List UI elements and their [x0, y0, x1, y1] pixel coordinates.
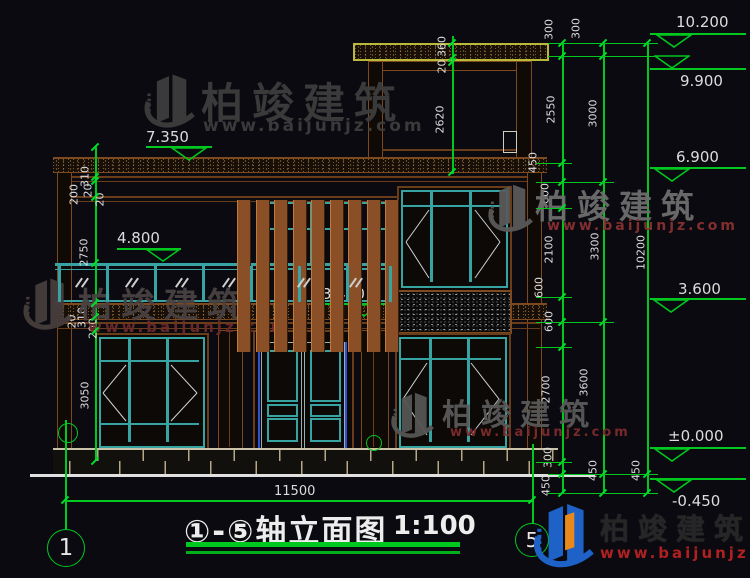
brand-logo-icon: [532, 502, 594, 574]
dim-extension-line: [548, 43, 658, 44]
elevation-label: 9.900: [680, 72, 723, 90]
door-panel: [310, 404, 341, 417]
watermark-site: www.baijunjz.com: [547, 218, 738, 234]
dim-label: 20: [94, 177, 107, 223]
roof-fascia-line: [57, 181, 540, 182]
brand-logo-icon: [487, 182, 533, 238]
dim-extension-line: [536, 297, 572, 298]
wood-slat: [348, 200, 362, 352]
dim-label: 20: [436, 44, 449, 90]
elevation-triangle: [654, 448, 690, 462]
drain-circle: [58, 423, 78, 443]
dim-label: 300: [543, 7, 556, 53]
door-edge-line: [345, 342, 347, 456]
overall-dim-line: [65, 500, 532, 502]
penthouse-sill-line: [382, 149, 516, 151]
dim-label: 2620: [434, 97, 447, 143]
elevation-triangle: [654, 55, 690, 69]
drain-circle: [366, 435, 382, 451]
axis-number: 1: [59, 535, 74, 561]
dim-label: 2550: [545, 87, 558, 133]
scale-label: 1:100: [393, 511, 476, 541]
dim-extension-line: [548, 474, 658, 475]
dim-extension-line: [548, 493, 658, 494]
railing-post: [154, 266, 157, 302]
door-panel: [267, 418, 298, 442]
dim-label: 3050: [79, 373, 92, 419]
dim-extension-line: [536, 208, 572, 209]
dim-label: 300: [570, 6, 583, 52]
railing-post: [58, 266, 61, 302]
elevation-label: ±0.000: [668, 427, 724, 445]
dim-label: 10200: [635, 230, 648, 276]
door-panel: [267, 350, 298, 402]
brand-logo-icon: [22, 276, 72, 336]
wood-slat: [311, 200, 325, 352]
dim-label: 11500: [274, 484, 315, 499]
brand-logo-icon: [390, 390, 434, 444]
dim-extension-line: [548, 56, 658, 57]
wood-slat: [367, 200, 381, 352]
spandrel-panel: [397, 290, 512, 334]
title-underline: [186, 551, 460, 554]
railing-post: [202, 266, 205, 302]
elevation-triangle: [656, 34, 692, 48]
dim-extension-line: [536, 347, 572, 348]
wood-slat: [256, 200, 270, 352]
elevation-label: 6.900: [676, 148, 719, 166]
pilaster-line: [229, 331, 230, 447]
axis-bubble-1: 1: [47, 529, 85, 567]
dim-label: 450: [587, 448, 600, 494]
title-underline: [186, 542, 460, 547]
elevation-label: 4.800: [117, 229, 160, 247]
watermark-site: www.baijunjz.com: [450, 425, 631, 440]
logo-site-text: www.baijunjz.com: [600, 544, 750, 562]
dim-label: 2750: [78, 230, 91, 276]
elevation-label: 3.600: [678, 280, 721, 298]
penthouse-ledge: [503, 131, 517, 153]
roof-fascia-line: [57, 176, 540, 178]
watermark-site: www.baijunjz.com: [203, 116, 425, 136]
elevation-triangle: [653, 299, 689, 313]
casement-open-symbols: [99, 337, 201, 444]
door-panel: [310, 418, 341, 442]
ground-line: [30, 474, 595, 477]
dim-label: 3000: [587, 91, 600, 137]
elevation-triangle: [146, 249, 180, 262]
door-panel: [310, 350, 341, 402]
elevation-triangle: [171, 147, 207, 161]
logo-brand-text: 柏竣建筑: [600, 506, 750, 548]
dim-extension-line: [536, 182, 614, 183]
wood-slat: [385, 200, 399, 352]
dim-extension-line: [536, 163, 572, 164]
dim-extension-line: [536, 462, 572, 463]
railing-post: [346, 266, 349, 302]
elevation-line: [650, 68, 746, 70]
elevation-drawing: 300 2550 450 600 2100 600 600 2700 300 4…: [0, 0, 750, 578]
railing-post: [250, 266, 253, 302]
wood-slat: [237, 200, 251, 352]
axis-line: [65, 420, 67, 530]
brand-logo-icon: [143, 72, 195, 134]
railing-post: [106, 266, 109, 302]
wood-slat: [274, 200, 288, 352]
railing-post: [389, 266, 392, 302]
band-line: [57, 196, 397, 198]
main-roof-slab: [53, 157, 547, 173]
door-panel: [267, 404, 298, 417]
dim-extension-line: [536, 322, 614, 323]
elevation-label: 10.200: [676, 13, 729, 31]
dim-label: 200: [68, 172, 81, 218]
wood-slat: [330, 200, 344, 352]
door-edge-line: [258, 342, 260, 456]
dim-label: 450: [630, 448, 643, 494]
elevation-triangle: [656, 479, 692, 493]
